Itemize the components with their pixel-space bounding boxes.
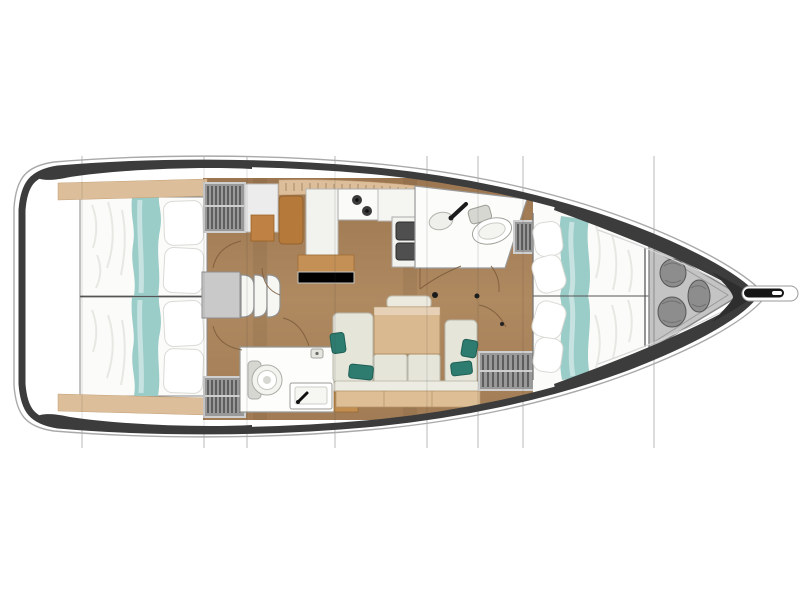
fender-bag [688, 280, 710, 312]
bed-runner-teal [132, 197, 161, 296]
bed-runner-teal [560, 216, 590, 380]
sofa-seat-bench [334, 381, 479, 392]
bed-runner-teal [132, 297, 161, 396]
galley-lower-counter-wood [298, 255, 354, 272]
door-pivot [500, 322, 504, 326]
folding-table [202, 272, 240, 318]
door-pivot [475, 294, 480, 299]
sofa-wood-base [336, 391, 480, 407]
runner-highlight [140, 300, 142, 393]
mast-cabinet [245, 184, 278, 241]
toilet [252, 365, 282, 395]
pillow [163, 200, 204, 245]
sofa-pillow-teal [450, 361, 472, 376]
galley-lower-ledge [298, 272, 354, 283]
wardrobe-locker-starboard [204, 377, 245, 417]
sink-basin [396, 243, 417, 260]
roller-notch [772, 291, 782, 295]
pillow [532, 220, 564, 258]
aft-cabin-starboard [80, 297, 207, 396]
sofa-cushion [408, 354, 440, 383]
dining-table [374, 307, 440, 354]
top-trim-wood [58, 179, 207, 200]
washbasin [290, 383, 332, 409]
sofa-pillow-teal [461, 339, 479, 358]
pillow [532, 336, 564, 374]
aft-head [240, 347, 337, 412]
runner-highlight [571, 222, 573, 376]
shower-control [311, 349, 323, 358]
pillow [163, 247, 204, 294]
wardrobe-locker-port [204, 183, 245, 232]
bottom-trim-wood [58, 394, 207, 415]
sofa-pillow-teal [330, 332, 347, 354]
bowsprit [742, 286, 798, 301]
sofa-cushion [374, 354, 407, 383]
galley-counter [378, 189, 420, 221]
yacht-floor-plan-page [0, 0, 800, 600]
table-post [432, 292, 438, 298]
galley-cabinet-wood [279, 196, 303, 244]
saloon [202, 272, 280, 318]
pillow [163, 348, 204, 393]
pillow [163, 300, 204, 347]
sofa-pillow-teal [348, 364, 373, 380]
yacht-floor-plan [0, 0, 800, 600]
sink-basin [396, 222, 417, 240]
wardrobe-locker-forward [479, 352, 534, 390]
aft-cabin-port [80, 197, 207, 296]
stacked-chair [267, 275, 280, 317]
galley-cabinet-white [306, 189, 338, 255]
stove [338, 189, 378, 220]
runner-highlight [140, 200, 142, 293]
